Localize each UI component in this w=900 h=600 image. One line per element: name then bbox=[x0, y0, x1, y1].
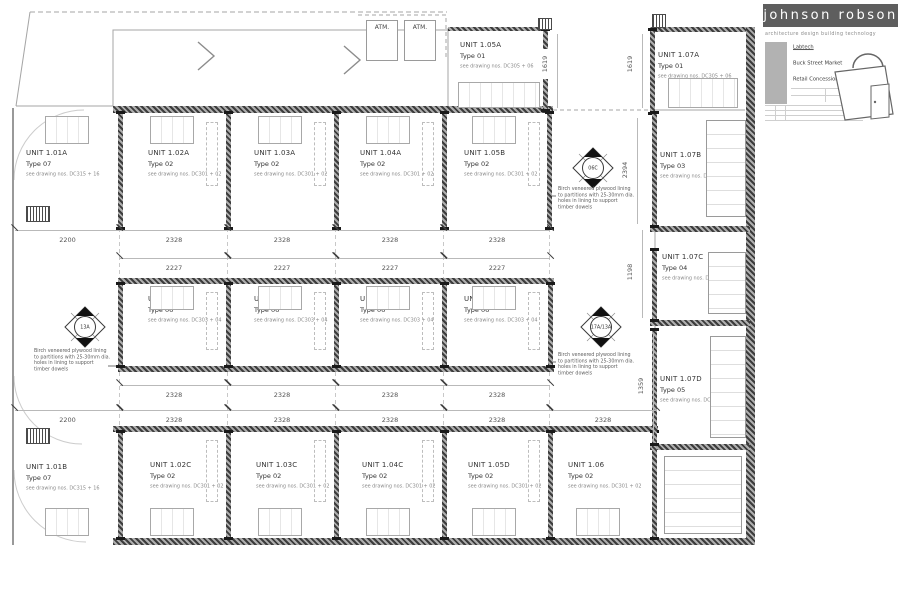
dim-value: 2328 bbox=[486, 416, 509, 424]
dim-value: 2328 bbox=[379, 391, 402, 399]
atm-label: ATM. bbox=[375, 24, 389, 31]
dim-v-line bbox=[637, 118, 638, 224]
partition-mid-1 bbox=[118, 284, 123, 366]
unit-counter bbox=[472, 116, 516, 144]
shopping-bag-logo-icon bbox=[825, 44, 899, 122]
unit-counter bbox=[150, 116, 194, 144]
unit-name: UNIT 1.01B bbox=[26, 464, 132, 471]
wall-right bbox=[746, 27, 755, 545]
dim-value: 2328 bbox=[163, 416, 186, 424]
wall-bench bbox=[26, 428, 50, 444]
unit-type: Type 02 bbox=[464, 161, 570, 168]
unit-label-1-05D: UNIT 1.05D Type 02 see drawing nos. DC30… bbox=[468, 462, 574, 490]
atm-kiosk: ATM. bbox=[404, 20, 436, 61]
unit-type: Type 02 bbox=[568, 473, 674, 480]
dim-value: 2328 bbox=[486, 236, 509, 244]
wall-rightcol-band2 bbox=[650, 320, 750, 326]
unit-counter bbox=[366, 286, 410, 310]
plywood-note: Birch veneered plywood lining to partiti… bbox=[558, 186, 635, 210]
unit-shelving bbox=[706, 120, 746, 217]
section-marker-label: 06C bbox=[575, 150, 610, 185]
dim-row3-seg3: 2328 bbox=[336, 385, 444, 405]
unit-display-rack bbox=[206, 440, 218, 502]
unit-counter bbox=[150, 508, 194, 536]
unit-label-1-01A: UNIT 1.01A Type 07 see drawing nos. DC31… bbox=[26, 150, 132, 178]
dim-row2-seg1: 2227 bbox=[120, 258, 228, 278]
dim-v-line bbox=[642, 230, 643, 318]
dim-row2-seg2: 2227 bbox=[228, 258, 336, 278]
unit-name: UNIT 1.06 bbox=[568, 462, 674, 469]
unit-label-1-02C: UNIT 1.02C Type 02 see drawing nos. DC30… bbox=[150, 462, 256, 490]
unit-display-rack bbox=[314, 292, 326, 350]
unit-counter bbox=[366, 116, 410, 144]
dim-value-vertical: 1619 bbox=[541, 49, 551, 79]
column-detail bbox=[652, 14, 666, 28]
unit-name: UNIT 1.05D bbox=[468, 462, 574, 469]
unit-drawing-note: see drawing nos. DC301 + 02 bbox=[362, 484, 449, 489]
unit-label-1-05B: UNIT 1.05B Type 02 see drawing nos. DC30… bbox=[464, 150, 570, 178]
unit-type: Type 07 bbox=[26, 161, 132, 168]
dim-value-vertical: 1198 bbox=[626, 257, 636, 287]
dim-value: 2328 bbox=[163, 391, 186, 399]
section-marker-label: 13A bbox=[67, 309, 102, 344]
unit-drawing-note: see drawing nos. DC315 + 16 bbox=[26, 172, 113, 177]
dim-value: 2328 bbox=[271, 416, 294, 424]
firm-tagline: architecture design building technology bbox=[765, 31, 876, 37]
dim-row3-seg4: 2328 bbox=[444, 385, 550, 405]
dim-value-vertical: 1359 bbox=[637, 371, 647, 401]
section-marker: 06C bbox=[571, 146, 615, 190]
firm-name: johnson robson bbox=[763, 4, 898, 27]
unit-counter bbox=[150, 286, 194, 310]
dim-value: 2328 bbox=[271, 236, 294, 244]
dim-row1-seg2: 2328 bbox=[120, 230, 228, 250]
unit-label-1-01B: UNIT 1.01B Type 07 see drawing nos. DC31… bbox=[26, 464, 132, 492]
unit-drawing-note: see drawing nos. DC303 + 04 bbox=[254, 318, 341, 323]
unit-type: Type 02 bbox=[468, 473, 574, 480]
dim-row3-seg1: 2328 bbox=[120, 385, 228, 405]
dim-row1-seg3: 2328 bbox=[228, 230, 336, 250]
unit-drawing-note: see drawing nos. DC301 + 02 bbox=[468, 484, 555, 489]
dim-value-vertical: 1619 bbox=[626, 49, 636, 79]
client-name: Labtech bbox=[793, 44, 814, 50]
unit-label-1-06: UNIT 1.06 Type 02 see drawing nos. DC301… bbox=[568, 462, 674, 490]
unit-name: UNIT 1.05B bbox=[464, 150, 570, 157]
unit-display-rack bbox=[422, 292, 434, 350]
dim-row2-seg3: 2227 bbox=[336, 258, 444, 278]
dim-value: 2227 bbox=[271, 264, 294, 272]
unit-drawing-note: see drawing nos. DC303 + 04 bbox=[148, 318, 235, 323]
section-marker-label: 17A/13A bbox=[583, 309, 618, 344]
unit-counter bbox=[458, 82, 540, 108]
section-marker: 17A/13A bbox=[579, 305, 623, 349]
unit-display-rack bbox=[528, 292, 540, 350]
wall-unit105A-top bbox=[448, 27, 545, 31]
unit-type: Type 07 bbox=[26, 475, 132, 482]
unit-display-rack bbox=[528, 122, 540, 186]
unit-counter bbox=[45, 508, 89, 536]
unit-counter bbox=[258, 116, 302, 144]
unit-display-rack bbox=[206, 292, 218, 350]
partition-strip-2 bbox=[650, 30, 655, 113]
dim-value: 2227 bbox=[379, 264, 402, 272]
dim-row1-seg4: 2328 bbox=[336, 230, 444, 250]
dim-v-line bbox=[653, 334, 654, 442]
unit-name: UNIT 1.04A bbox=[360, 150, 466, 157]
unit-label-1-03C: UNIT 1.03C Type 02 see drawing nos. DC30… bbox=[256, 462, 362, 490]
unit-drawing-note: see drawing nos. DC301 + 02 bbox=[568, 484, 655, 489]
dim-value: 2328 bbox=[379, 236, 402, 244]
title-block: johnson robson architecture design build… bbox=[763, 4, 898, 120]
unit-name: UNIT 1.04C bbox=[362, 462, 468, 469]
unit-name: UNIT 1.02A bbox=[148, 150, 254, 157]
revision-table-rule bbox=[785, 105, 786, 120]
unit-drawing-note: see drawing nos. DC301 + 02 bbox=[150, 484, 237, 489]
unit-type: Type 02 bbox=[256, 473, 362, 480]
unit-label-1-02A: UNIT 1.02A Type 02 see drawing nos. DC30… bbox=[148, 150, 254, 178]
unit-type: Type 02 bbox=[254, 161, 360, 168]
unit-drawing-note: see drawing nos. DC301 + 02 bbox=[148, 172, 235, 177]
wall-rightcol-band3 bbox=[650, 444, 750, 450]
dim-value: 2227 bbox=[163, 264, 186, 272]
revision-table-rule bbox=[775, 105, 776, 120]
partition-rightcol-2 bbox=[652, 250, 657, 320]
dim-value: 2328 bbox=[592, 416, 615, 424]
unit-label-1-07A: UNIT 1.07A Type 01 see drawing nos. DC30… bbox=[658, 52, 764, 80]
dim-value-vertical: 2394 bbox=[621, 155, 631, 185]
unit-counter bbox=[45, 116, 89, 144]
unit-drawing-note: see drawing nos. DC315 + 16 bbox=[26, 486, 113, 491]
plywood-note: Birch veneered plywood lining to partiti… bbox=[558, 352, 635, 376]
unit-counter bbox=[472, 286, 516, 310]
dim-row2-seg4: 2227 bbox=[444, 258, 550, 278]
unit-name: UNIT 1.02C bbox=[150, 462, 256, 469]
dim-row4-seg3: 2328 bbox=[228, 410, 336, 430]
dim-row3-seg2: 2328 bbox=[228, 385, 336, 405]
dim-row4-seg2: 2328 bbox=[120, 410, 228, 430]
dim-v-line bbox=[642, 34, 643, 108]
unit-type: Type 02 bbox=[360, 161, 466, 168]
dim-row4-seg6: 2328 bbox=[550, 410, 656, 430]
unit-counter bbox=[668, 78, 738, 108]
wall-bench bbox=[26, 206, 50, 222]
unit-shelving bbox=[710, 336, 746, 438]
escalator-chevrons bbox=[198, 42, 360, 74]
unit-counter bbox=[258, 286, 302, 310]
plywood-note: Birch veneered plywood lining to partiti… bbox=[34, 348, 111, 372]
atm-label: ATM. bbox=[413, 24, 427, 31]
dim-row4-seg1: 2200 bbox=[15, 410, 120, 430]
dim-value: 2328 bbox=[271, 391, 294, 399]
unit-type: Type 01 bbox=[658, 63, 764, 70]
dim-v-line bbox=[557, 34, 558, 108]
atm-kiosk: ATM. bbox=[366, 20, 398, 61]
wall-left bbox=[12, 108, 14, 545]
unit-display-rack bbox=[528, 440, 540, 502]
unit-drawing-note: see drawing nos. DC301 + 02 bbox=[256, 484, 343, 489]
unit-display-rack bbox=[314, 122, 326, 186]
unit-display-rack bbox=[206, 122, 218, 186]
unit-name: UNIT 1.07A bbox=[658, 52, 764, 59]
unit-type: Type 02 bbox=[362, 473, 468, 480]
storage-shelving bbox=[664, 456, 742, 534]
dim-value: 2328 bbox=[163, 236, 186, 244]
unit-counter bbox=[576, 508, 620, 536]
unit-label-1-04C: UNIT 1.04C Type 02 see drawing nos. DC30… bbox=[362, 462, 468, 490]
section-marker: 13A bbox=[63, 305, 107, 349]
unit-drawing-note: see drawing nos. DC305 + 06 bbox=[460, 64, 547, 69]
wall-bottom bbox=[113, 538, 661, 545]
unit-name: UNIT 1.03A bbox=[254, 150, 360, 157]
unit-type: Type 02 bbox=[150, 473, 256, 480]
unit-counter bbox=[472, 508, 516, 536]
unit-counter bbox=[366, 508, 410, 536]
unit-display-rack bbox=[422, 122, 434, 186]
dim-value: 2227 bbox=[486, 264, 509, 272]
unit-name: UNIT 1.03C bbox=[256, 462, 362, 469]
dim-value: 2328 bbox=[379, 416, 402, 424]
unit-type: Type 02 bbox=[148, 161, 254, 168]
unit-counter bbox=[258, 508, 302, 536]
dim-value: 2328 bbox=[486, 391, 509, 399]
unit-name: UNIT 1.01A bbox=[26, 150, 132, 157]
unit-label-1-03A: UNIT 1.03A Type 02 see drawing nos. DC30… bbox=[254, 150, 360, 178]
dim-value: 2200 bbox=[56, 236, 79, 244]
dim-row1-seg5: 2328 bbox=[444, 230, 550, 250]
unit-drawing-note: see drawing nos. DC301 + 02 bbox=[254, 172, 341, 177]
unit-display-rack bbox=[422, 440, 434, 502]
unit-name: UNIT 1.05A bbox=[460, 42, 566, 49]
unit-display-rack bbox=[314, 440, 326, 502]
dim-value: 2200 bbox=[56, 416, 79, 424]
dim-row4-seg5: 2328 bbox=[444, 410, 550, 430]
unit-label-1-04A: UNIT 1.04A Type 02 see drawing nos. DC30… bbox=[360, 150, 466, 178]
titleblock-sidebar bbox=[765, 42, 787, 104]
column-detail bbox=[538, 18, 552, 30]
partition-rightcol-1 bbox=[652, 113, 657, 226]
wall-bottom-right bbox=[661, 538, 755, 545]
dim-row4-seg4: 2328 bbox=[336, 410, 444, 430]
wall-rightcol-band1 bbox=[650, 226, 750, 232]
dim-row1-seg1: 2200 bbox=[15, 230, 120, 250]
unit-shelving bbox=[708, 252, 746, 314]
